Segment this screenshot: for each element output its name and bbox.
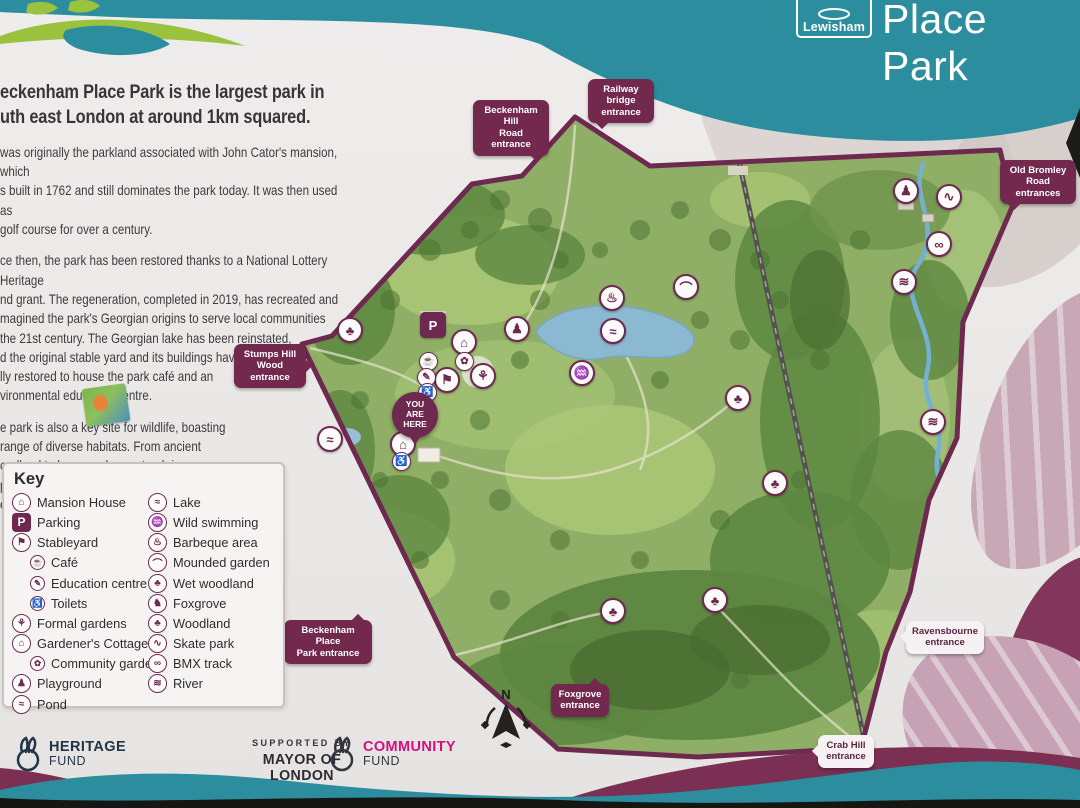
- wild-swimming-icon: ♒: [148, 513, 167, 532]
- woodland-b-map-icon: ♣: [762, 470, 788, 496]
- ravensbourne-entrance-label: Ravensbourne entrance: [906, 621, 984, 654]
- key-item-caf: ☕Café: [30, 555, 148, 572]
- key-item-wild-swimming: ♒Wild swimming: [148, 514, 275, 531]
- river-icon: ≋: [148, 674, 167, 693]
- key-item-education-centre: ✎Education centre: [30, 575, 148, 592]
- sticker: [82, 383, 131, 427]
- foxgrove-icon: ♞: [148, 594, 167, 613]
- woodland-d-map-icon: ♣: [600, 598, 626, 624]
- pond-map-icon: ≈: [317, 426, 343, 452]
- woodland-icon: ♣: [148, 614, 167, 633]
- pond-icon: ≈: [12, 695, 31, 714]
- intro-lead: eckenham Place Park is the largest park …: [0, 80, 353, 131]
- key-item-pond: ≈Pond: [12, 696, 148, 713]
- toilets-2-map-icon: ♿: [392, 452, 411, 471]
- lewisham-logo: Lewisham: [796, 0, 872, 38]
- heritage-fund-line1: HERITAGE: [49, 740, 126, 755]
- lewisham-label: Lewisham: [803, 20, 865, 34]
- compass-arrow-icon: [481, 701, 531, 749]
- key-item-label: BMX track: [173, 656, 232, 671]
- playground-icon: ♟: [12, 674, 31, 693]
- key-item-river: ≋River: [148, 676, 275, 693]
- barbeque-area-icon: ♨: [148, 533, 167, 552]
- railway-bridge-entrance-label: Railway bridge entrance: [588, 79, 654, 123]
- heritage-fund-logo: HERITAGE FUND: [12, 736, 126, 772]
- community-fund-logo: COMMUNITY FUND: [326, 736, 456, 772]
- key-item-label: Toilets: [51, 596, 87, 611]
- key-item-label: River: [173, 676, 203, 691]
- community-fund-line2: FUND: [363, 755, 456, 768]
- formal-gardens-map-icon: ⚘: [470, 363, 496, 389]
- key-item-label: Wet woodland: [173, 576, 254, 591]
- key-item-formal-gardens: ⚘Formal gardens: [12, 615, 148, 632]
- key-item-label: Stableyard: [37, 535, 98, 550]
- key-item-label: Gardener's Cottage: [37, 636, 148, 651]
- woodland-a-map-icon: ♣: [337, 317, 363, 343]
- key-item-label: Pond: [37, 697, 67, 712]
- key-column-right: ≈Lake♒Wild swimming♨Barbeque area⌒Mounde…: [148, 494, 275, 712]
- key-item-parking: PParking: [12, 514, 148, 531]
- key-item-label: Playground: [37, 676, 102, 691]
- skate-park-map-icon: ∿: [936, 184, 962, 210]
- wet-woodland-map-icon: ♣: [725, 385, 751, 411]
- key-item-label: Mounded garden: [173, 555, 270, 570]
- key-item-toilets: ♿Toilets: [30, 595, 148, 612]
- key-item-label: Barbeque area: [173, 535, 258, 550]
- key-item-skate-park: ∿Skate park: [148, 635, 275, 652]
- formal-gardens-icon: ⚘: [12, 614, 31, 633]
- barbeque-map-icon: ♨: [599, 285, 625, 311]
- beckenham-place-park-entrance-label: Beckenham Place Park entrance: [284, 620, 372, 664]
- old-bromley-road-entrance-label: Old Bromley Road entrances: [1000, 160, 1076, 204]
- stumps-hill-wood-entrance-label: Stumps Hill Wood entrance: [234, 344, 306, 388]
- stableyard-map-icon: ⚑: [434, 367, 460, 393]
- key-item-mansion-house: ⌂Mansion House: [12, 494, 148, 511]
- foxgrove-entrance-label: Foxgrove entrance: [551, 684, 609, 717]
- wet-woodland-icon: ♣: [148, 574, 167, 593]
- crossed-fingers-icon: [326, 736, 358, 772]
- beckenham-hill-road-entrance-label: Beckenham Hill Road entrance: [473, 100, 549, 156]
- key-item-label: Skate park: [173, 636, 234, 651]
- parking-icon: P: [12, 513, 31, 532]
- key-item-bmx-track: ∞BMX track: [148, 656, 275, 673]
- river-2-map-icon: ≋: [920, 409, 946, 435]
- page-title: Place Park: [882, 0, 1080, 90]
- park-sign-photo: Lewisham Place Park eckenham Place Park …: [0, 0, 1080, 808]
- key-item-stableyard: ⚑Stableyard: [12, 534, 148, 551]
- playground-2-map-icon: ♟: [893, 178, 919, 204]
- key-item-barbeque-area: ♨Barbeque area: [148, 534, 275, 551]
- key-title: Key: [14, 470, 275, 489]
- key-item-lake: ≈Lake: [148, 494, 275, 511]
- key-item-woodland: ♣Woodland: [148, 615, 275, 632]
- river-map-icon: ≋: [891, 269, 917, 295]
- gardener-s-cottage-icon: ⌂: [12, 634, 31, 653]
- key-item-label: Lake: [173, 495, 201, 510]
- key-item-label: Wild swimming: [173, 515, 258, 530]
- playground-map-icon: ♟: [504, 316, 530, 342]
- key-panel: Key ⌂Mansion HousePParking⚑Stableyard☕Ca…: [2, 462, 285, 708]
- key-item-label: Foxgrove: [173, 596, 226, 611]
- key-item-label: Café: [51, 555, 78, 570]
- lake-map-icon: ≈: [600, 318, 626, 344]
- community-gardens-icon: ✿: [30, 656, 45, 671]
- footer-band: [0, 738, 1080, 808]
- intro-paragraph-1: was originally the parkland associated w…: [0, 143, 353, 240]
- key-item-community-gardens: ✿Community gardens: [30, 656, 148, 673]
- crossed-fingers-icon: [12, 736, 44, 772]
- heritage-fund-line2: FUND: [49, 755, 126, 768]
- compass-north-label: N: [501, 688, 510, 701]
- key-column-left: ⌂Mansion HousePParking⚑Stableyard☕Café✎E…: [12, 494, 148, 712]
- wild-swimming-map-icon: ♒: [569, 360, 595, 386]
- key-item-label: Parking: [37, 515, 80, 530]
- key-item-playground: ♟Playground: [12, 676, 148, 693]
- bmx-track-icon: ∞: [148, 654, 167, 673]
- key-item-label: Education centre: [51, 576, 147, 591]
- stableyard-icon: ⚑: [12, 533, 31, 552]
- bmx-track-map-icon: ∞: [926, 231, 952, 257]
- mounded-garden-map-icon: ⌒: [673, 274, 699, 300]
- key-item-label: Woodland: [173, 616, 230, 631]
- caf-icon: ☕: [30, 555, 45, 570]
- crab-hill-entrance-label: Crab Hill entrance: [818, 735, 874, 768]
- key-item-label: Mansion House: [37, 495, 126, 510]
- education-centre-icon: ✎: [30, 576, 45, 591]
- toilets-icon: ♿: [30, 596, 45, 611]
- lake-icon: ≈: [148, 493, 167, 512]
- key-item-gardener-s-cottage: ⌂Gardener's Cottage: [12, 635, 148, 652]
- mounded-garden-icon: ⌒: [148, 553, 167, 572]
- skate-park-icon: ∿: [148, 634, 167, 653]
- lewisham-emblem-icon: [814, 6, 854, 20]
- compass: N: [478, 688, 534, 749]
- key-item-wet-woodland: ♣Wet woodland: [148, 575, 275, 592]
- key-item-label: Formal gardens: [37, 616, 127, 631]
- intro-text: eckenham Place Park is the largest park …: [0, 80, 420, 514]
- key-item-foxgrove: ♞Foxgrove: [148, 595, 275, 612]
- parking-map-icon: P: [420, 312, 446, 338]
- mansion-house-icon: ⌂: [12, 493, 31, 512]
- key-item-mounded-garden: ⌒Mounded garden: [148, 555, 275, 572]
- you-are-here-marker: YOU ARE HERE: [392, 392, 438, 438]
- woodland-c-map-icon: ♣: [702, 587, 728, 613]
- community-fund-line1: COMMUNITY: [363, 740, 456, 755]
